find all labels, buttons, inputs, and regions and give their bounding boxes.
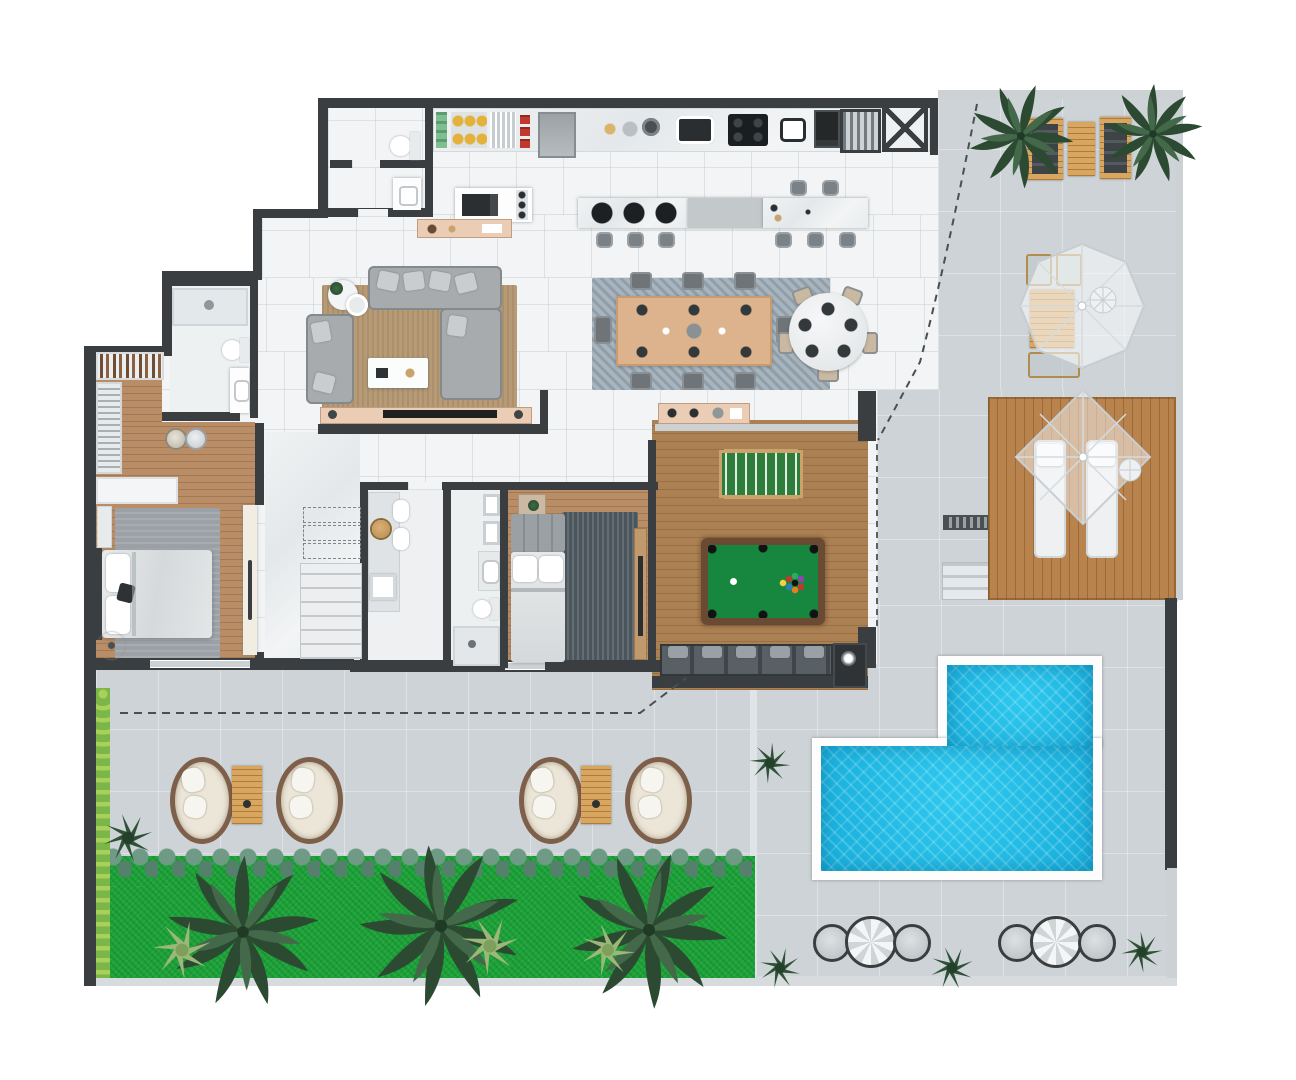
bath2-shower-head [468,640,476,648]
bath2-basin [482,560,500,584]
knob-panel[interactable] [516,190,528,220]
terrace-right-edge [1176,90,1183,600]
glass-door-master[interactable] [150,660,250,668]
pool-pouf[interactable] [1078,924,1116,962]
range-hood [538,112,576,158]
oven[interactable] [814,110,840,148]
island-stool[interactable] [775,232,792,248]
wall-left-1 [318,98,328,217]
sofa-pillow [376,270,399,292]
outdoor-chair-3[interactable] [1028,352,1080,378]
tv-screen[interactable] [383,410,497,418]
dining-settings [620,300,768,362]
pool-steps [943,563,991,599]
outdoor-chair-1[interactable] [1026,254,1052,286]
wall-wc-right [425,106,433,216]
sofa-pillow [310,321,331,344]
drain-grate [945,517,994,528]
master-nightstand [97,506,112,548]
bed2-duvet-fold [511,588,565,592]
bed2-pillow-2 [539,556,563,582]
ensuite-shower-head [204,300,214,310]
egg-table-decor [592,800,600,808]
sunbed-right-pillow [1089,444,1115,466]
bed2-headboard [511,514,565,552]
microwave[interactable] [462,194,498,216]
island-stool[interactable] [658,232,675,248]
service-tray [370,574,396,600]
pouf-parasol [845,916,897,968]
wall-ensuite-right [250,286,258,418]
wc-toilet-tank [410,132,420,160]
wall-living-return [540,390,548,424]
pantry-green-jars [436,112,447,148]
coffee-table-decor [374,364,422,382]
island-stool[interactable] [627,232,644,248]
side-table-plant [330,282,343,295]
billiard-rack [778,572,804,594]
tv-speaker-right [514,410,523,419]
wall-bedroom2-game [648,440,656,668]
wall-service-bath [443,490,451,668]
dining-chair[interactable] [630,272,652,290]
game-tv-speaker [841,651,856,666]
sun-deck [988,397,1176,600]
kitchen-sink-2[interactable] [780,118,806,142]
master-duvet-fold [132,552,136,636]
dining-chair[interactable] [594,316,612,344]
pantry-red-cans [520,112,530,148]
ensuite-toilet-tank [240,338,249,362]
wall-left-2 [253,209,262,280]
bed2-nightstand-plant [528,500,539,511]
wall-ensuite-top [162,278,258,286]
elevator[interactable] [882,104,928,152]
wall-living-tv [318,424,548,434]
master-door-handle [248,560,252,620]
stairs-dashed-3 [303,543,361,559]
pool-water-main [821,746,1093,871]
dining-chair[interactable] [734,372,756,390]
game-sofa-pillow [804,646,824,658]
bath2-mirror-2 [483,521,500,545]
outdoor-chair-2[interactable] [1056,254,1082,286]
game-sofa-pillow [668,646,688,658]
closet-hanging-rack [96,382,122,474]
sunbed-left-pillow [1037,444,1063,466]
wall-kitchen-right [930,98,938,155]
wall-bath-bedroom2 [500,490,508,668]
service-tub-2 [393,528,409,550]
pool-water-upper [947,665,1093,750]
stairs-dashed-1 [303,507,361,523]
nesting-side-table-2 [346,294,368,316]
pool-pouf[interactable] [893,924,931,962]
wall-service-top [360,482,658,490]
game-sideboard-decor [662,407,746,420]
pouf-parasol [1030,916,1082,968]
foosball-table[interactable] [722,453,800,495]
staircase[interactable] [300,563,362,659]
master-headboard [94,548,102,640]
bath2-mirror-1 [483,494,500,516]
bath2-toilet-bowl [473,600,491,618]
wc-toilet-bowl [390,136,411,156]
stairs-dashed-2 [303,525,361,541]
counter-bowl [642,118,660,136]
egg-set-table [232,766,262,824]
laundry-basket-1 [167,430,185,448]
shoe-shelf [96,352,164,380]
terrace-side-table [1068,122,1095,176]
terrace-chair-right-cushion [1104,123,1127,173]
bath2-toilet-tank [490,598,499,620]
bedroom2-rug [562,512,638,662]
sofa-pillow [429,270,452,291]
master-pouf [98,632,125,659]
service-basket [372,520,390,538]
wall-master-hall-a [255,423,264,505]
door-gap-service[interactable] [408,482,442,490]
entry-console-decor [424,222,504,235]
shrub-row [104,845,752,887]
island-stool[interactable] [790,180,807,196]
round-table-settings [789,293,867,371]
service-tub-1 [393,500,409,522]
dining-chair[interactable] [682,272,704,290]
game-sofa-pillow [702,646,722,658]
hedge-strip [96,688,110,978]
game-sofa-pillow [770,646,790,658]
dining-chair[interactable] [734,272,756,290]
kitchen-sink-1[interactable] [676,116,714,144]
counter-plates [600,120,640,138]
dining-chair[interactable] [630,372,652,390]
game-sofa-pillow [736,646,756,658]
pantry-white-rack [490,112,516,148]
island-mid [688,198,763,228]
glass-door-bedroom2[interactable] [505,662,545,670]
island-stool[interactable] [807,232,824,248]
wall-game-top [655,424,862,431]
cooktop[interactable] [728,114,768,146]
island-stool[interactable] [822,180,839,196]
billiard-cue-ball [730,578,737,585]
wall-step-1 [253,209,328,218]
bath2-shower [453,626,500,666]
island-stool[interactable] [839,232,856,248]
pantry-yellow-jars [451,112,487,148]
grill [843,112,878,150]
island-stool[interactable] [596,232,613,248]
door-gap-powder[interactable] [358,209,388,217]
wall-ensuite-bottom [162,412,240,421]
bed2-pillow-1 [513,556,537,582]
dining-chair[interactable] [682,372,704,390]
wall-right-light [1167,868,1177,978]
bed2-sideboard-tv [638,556,643,636]
master-wood-floor2 [122,380,162,422]
terrace-chair-left-cushion [1032,124,1058,174]
sofa-pillow [447,315,468,337]
sofa-pillow [403,271,425,292]
egg-set-table [581,766,611,824]
powder-basin [399,186,418,206]
egg-table-decor [243,800,251,808]
door-gap-wc[interactable] [352,160,380,168]
wall-game-pillar-top [858,391,876,441]
vanity-bottles [100,481,174,500]
outdoor-dining-table [1030,290,1074,348]
ensuite-basin [234,380,250,402]
floor-plan [0,0,1296,1080]
terrace-top-edge [938,90,1183,99]
island-right-decor [768,202,828,224]
laundry-basket-2 [187,430,205,448]
ensuite-toilet-bowl [222,340,242,360]
wall-top [318,98,938,108]
tv-speaker-left [328,410,337,419]
island-burners [586,200,682,226]
wall-right-dark [1165,598,1177,870]
